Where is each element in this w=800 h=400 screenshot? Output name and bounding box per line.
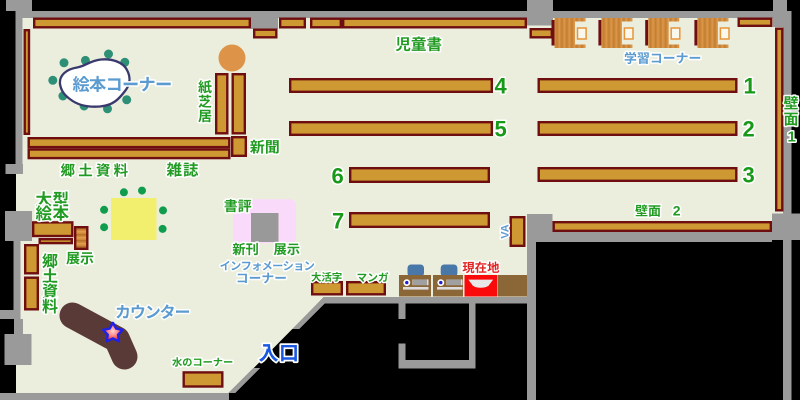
svg-text:5: 5 bbox=[495, 117, 507, 142]
svg-text:1: 1 bbox=[744, 74, 756, 99]
svg-text:7: 7 bbox=[332, 209, 344, 234]
svg-text:4: 4 bbox=[495, 74, 508, 99]
svg-text:2: 2 bbox=[743, 117, 755, 142]
svg-text:1: 1 bbox=[788, 129, 796, 146]
svg-text:2: 2 bbox=[673, 203, 681, 219]
svg-text:3: 3 bbox=[743, 163, 755, 188]
svg-text:6: 6 bbox=[332, 164, 344, 189]
svg-text:VA: VA bbox=[500, 224, 512, 239]
